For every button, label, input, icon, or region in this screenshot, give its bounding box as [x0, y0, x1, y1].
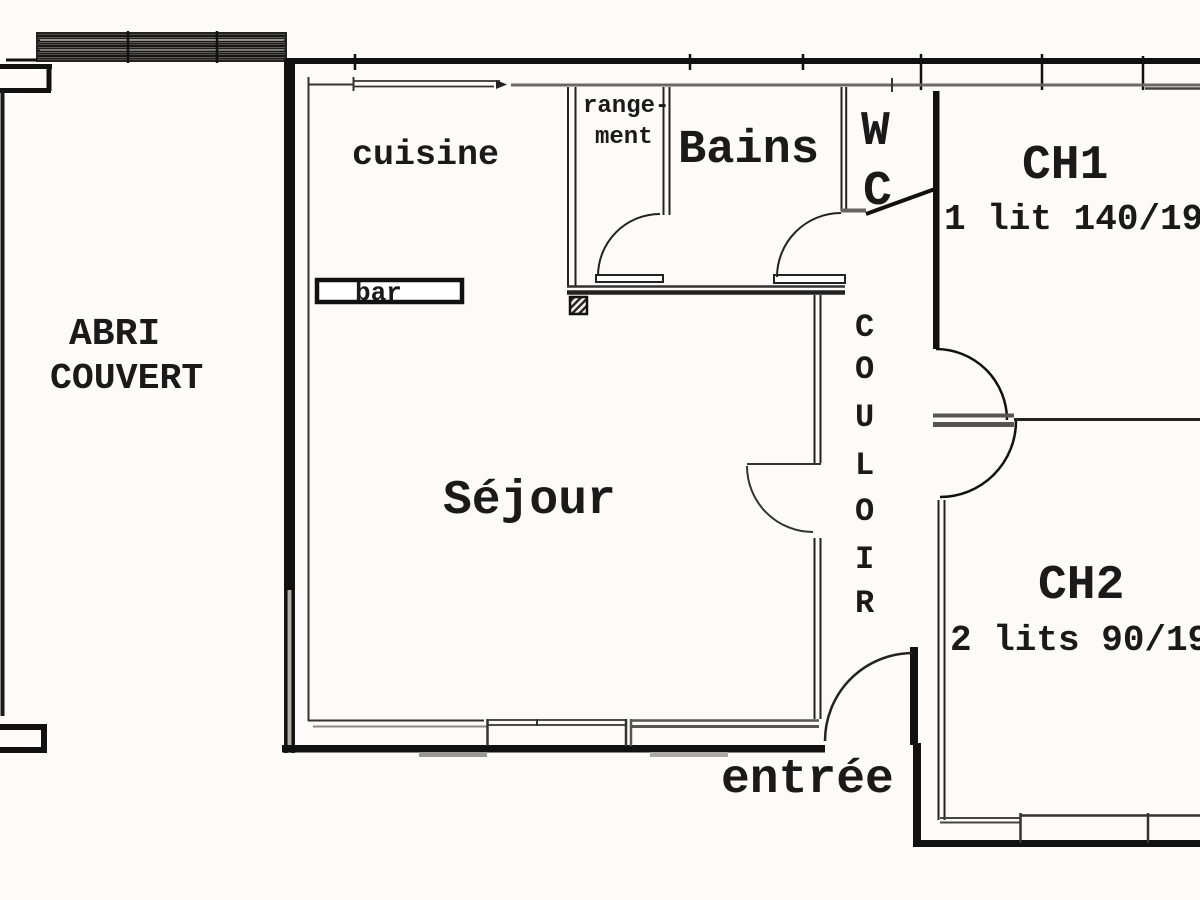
svg-text:Bains: Bains: [678, 124, 819, 177]
svg-text:CH2: CH2: [1038, 559, 1124, 613]
svg-text:CH1: CH1: [1022, 139, 1108, 193]
svg-text:entrée: entrée: [721, 753, 894, 807]
svg-text:1 lit 140/190: 1 lit 140/190: [944, 199, 1200, 240]
svg-text:U: U: [855, 399, 874, 436]
svg-text:O: O: [855, 351, 874, 388]
svg-text:C: C: [863, 165, 892, 219]
svg-text:cuisine: cuisine: [352, 135, 499, 175]
svg-text:ABRI: ABRI: [69, 313, 160, 356]
svg-text:2 lits 90/190: 2 lits 90/190: [950, 620, 1200, 661]
svg-text:ment: ment: [595, 124, 653, 151]
svg-text:range-: range-: [583, 93, 669, 120]
svg-text:C: C: [855, 309, 874, 346]
svg-text:bar: bar: [355, 278, 402, 308]
svg-text:Séjour: Séjour: [443, 474, 616, 528]
svg-text:COUVERT: COUVERT: [50, 358, 203, 399]
svg-text:I: I: [855, 541, 874, 578]
svg-text:W: W: [861, 105, 890, 159]
svg-text:L: L: [855, 447, 874, 484]
svg-text:O: O: [855, 493, 874, 530]
svg-text:R: R: [855, 585, 875, 622]
